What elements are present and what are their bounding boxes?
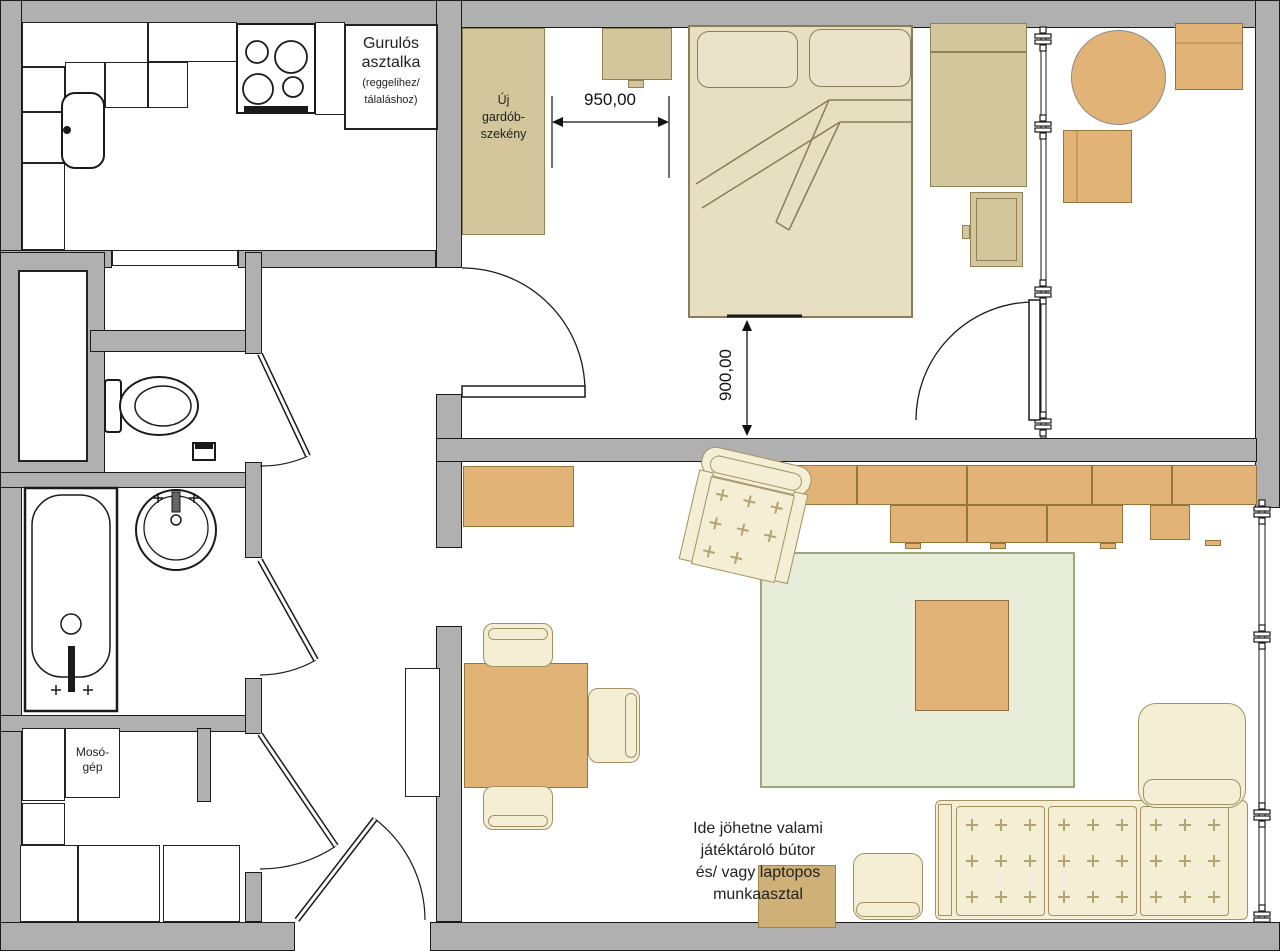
sideboard-divider — [1046, 506, 1048, 542]
tuft-mark — [742, 494, 756, 508]
wall-rooms-right-2 — [245, 462, 262, 558]
suggestion-note-line: Ide jöhetne valami — [638, 818, 878, 840]
wall-bottom-left — [0, 922, 295, 951]
washbasin — [136, 490, 216, 570]
tuft-mark — [763, 529, 777, 543]
suggestion-note: Ide jöhetne valami játéktároló bútor és/… — [638, 818, 878, 914]
door-wc — [260, 354, 308, 466]
tuft-mark — [1087, 819, 1099, 831]
kitchen-cabinet — [22, 163, 65, 250]
coffee-table — [915, 600, 1009, 711]
sofa-cushion — [1140, 806, 1229, 916]
tuft-mark — [715, 488, 729, 502]
dimension-label-vertical: 900,00 — [716, 345, 738, 405]
suggestion-note-line: játéktároló bútor — [638, 840, 878, 862]
dining-chair-back — [488, 815, 548, 827]
corner-cabinet — [463, 466, 574, 527]
suggestion-note-line: és/ vagy laptopos — [638, 862, 878, 884]
sideboard-foot — [1205, 540, 1221, 546]
sideboard-deep-section — [1150, 505, 1190, 540]
wall-rooms-right-3 — [245, 678, 262, 734]
kitchen-cabinet — [22, 67, 65, 112]
balcony-round-table — [1071, 30, 1166, 125]
wardrobe-label-line: gardób- — [462, 109, 545, 126]
wall-right-upper — [1255, 0, 1280, 508]
laundry-cabinet — [22, 728, 65, 801]
tuft-mark — [1150, 855, 1162, 867]
wardrobe-label: Új gardób- szekény — [462, 92, 545, 150]
wall-mid-column-a — [436, 0, 462, 268]
ventilation-shaft — [18, 270, 88, 462]
dining-chair-back — [625, 693, 637, 758]
sliding-door-cassette — [112, 250, 238, 266]
balcony-chair — [1175, 23, 1243, 90]
rolling-table-label: (reggelihez/ — [346, 76, 436, 90]
kitchen-counter-strip — [315, 22, 345, 115]
dining-chair — [483, 786, 553, 830]
sideboard-deep-section — [890, 505, 1123, 543]
sofa — [935, 800, 1248, 920]
tuft-mark — [995, 819, 1007, 831]
rolling-table-label-box: Gurulós asztalka (reggelihez/ tálaláshoz… — [344, 24, 438, 130]
door-bathroom — [260, 560, 316, 675]
wall-wc-bath-separator — [0, 472, 250, 488]
sideboard-divider — [966, 466, 968, 504]
sofa-armrest — [938, 804, 952, 916]
dining-chair-back — [488, 628, 548, 640]
bedroom-wardrobe-right — [930, 23, 1027, 187]
wardrobe-label-line: Új — [462, 92, 545, 109]
tuft-mark — [1208, 855, 1220, 867]
sideboard-foot — [905, 543, 921, 549]
tuft-mark — [1024, 819, 1036, 831]
tuft-mark — [1150, 891, 1162, 903]
tuft-mark — [1116, 855, 1128, 867]
kitchen-cabinet — [148, 22, 237, 62]
sideboard-divider — [966, 506, 968, 542]
wall-mid-column-b — [436, 394, 462, 440]
tuft-mark — [1058, 819, 1070, 831]
dining-chair — [588, 688, 640, 763]
tuft-mark — [1058, 855, 1070, 867]
pillow — [697, 31, 798, 88]
door-bedroom — [462, 268, 585, 397]
wall-vestibule-bottom — [90, 330, 250, 352]
wall-bottom-right — [430, 922, 1280, 951]
tuft-mark — [729, 551, 743, 565]
kitchen-cabinet — [148, 62, 188, 108]
sideboard-foot — [990, 543, 1006, 549]
pillow — [809, 29, 911, 87]
washing-machine-label: Mosó- — [66, 745, 119, 760]
tuft-mark — [1179, 891, 1191, 903]
wall-mid-column-c — [436, 460, 462, 548]
sideboard-foot — [1100, 543, 1116, 549]
tuft-mark — [1179, 819, 1191, 831]
tuft-mark — [1058, 891, 1070, 903]
stove — [237, 24, 315, 113]
tuft-mark — [1150, 819, 1162, 831]
kitchen-cabinet — [65, 62, 105, 108]
tuft-mark — [995, 891, 1007, 903]
door-laundry — [260, 734, 336, 869]
tuft-mark — [770, 500, 784, 514]
tuft-mark — [702, 545, 716, 559]
toilet — [105, 377, 215, 460]
wall-kitchen-bottom-right — [238, 250, 436, 268]
lounge-chair — [1138, 703, 1246, 808]
laundry-cabinet — [20, 845, 78, 922]
tuft-mark — [1179, 855, 1191, 867]
sideboard-divider — [1091, 466, 1093, 504]
kitchen-cabinet — [105, 62, 148, 108]
dimension-label-horizontal: 950,00 — [558, 90, 662, 112]
sideboard-divider — [1171, 466, 1173, 504]
tuft-mark — [1024, 855, 1036, 867]
tuft-mark — [966, 891, 978, 903]
laundry-cabinet — [163, 845, 240, 922]
wall-rooms-right-1 — [245, 252, 262, 354]
bedside-cabinet-knob — [962, 225, 970, 239]
hallway-cabinet — [405, 668, 440, 797]
tuft-mark — [1087, 891, 1099, 903]
washing-machine: Mosó- gép — [65, 728, 120, 798]
floor-plan: Gurulós asztalka (reggelihez/ tálaláshoz… — [0, 0, 1280, 951]
kitchen-cabinet — [22, 112, 65, 163]
rolling-table-label: Gurulós — [346, 34, 436, 53]
tuft-mark — [966, 855, 978, 867]
wall-bedroom-living-separator — [436, 438, 1257, 462]
kitchen-cabinet — [22, 22, 148, 67]
lounge-chair-seat-edge — [1143, 779, 1241, 805]
wall-laundry-stub — [197, 728, 211, 802]
sofa-cushion — [956, 806, 1045, 916]
suggestion-note-line: munkaasztal — [638, 884, 878, 906]
laundry-cabinet — [22, 803, 65, 845]
balcony-chair-edge — [1076, 131, 1078, 202]
wall-rooms-right-4 — [245, 872, 262, 922]
tuft-mark — [1087, 855, 1099, 867]
tuft-mark — [995, 855, 1007, 867]
wardrobe-label-line: szekény — [462, 126, 545, 143]
tuft-mark — [1208, 819, 1220, 831]
dimension-arrow-vertical — [742, 320, 752, 436]
door-balcony — [916, 300, 1040, 420]
tuft-mark — [1208, 891, 1220, 903]
tuft-mark — [966, 819, 978, 831]
bedside-cabinet — [970, 192, 1023, 267]
balcony-chair-edge — [1176, 42, 1242, 44]
sofa-cushion — [1048, 806, 1137, 916]
dining-table — [464, 663, 588, 788]
tuft-mark — [1116, 891, 1128, 903]
washing-machine-label: gép — [66, 760, 119, 775]
bathtub — [25, 488, 117, 711]
bedside-cabinet-inner — [976, 198, 1017, 261]
dining-chair — [483, 623, 553, 667]
sideboard-base — [793, 465, 1257, 505]
nightstand — [602, 28, 672, 80]
tuft-mark — [736, 522, 750, 536]
rolling-table-label: asztalka — [346, 53, 436, 72]
rolling-table-label: tálaláshoz) — [346, 93, 436, 107]
balcony-chair — [1063, 130, 1132, 203]
tuft-mark — [1116, 819, 1128, 831]
nightstand-knob — [628, 80, 644, 88]
door-entry — [297, 819, 425, 920]
tuft-mark — [1024, 891, 1036, 903]
laundry-cabinet — [78, 845, 160, 922]
tuft-mark — [708, 516, 722, 530]
wardrobe-divider — [931, 51, 1026, 53]
sideboard-divider — [856, 466, 858, 504]
